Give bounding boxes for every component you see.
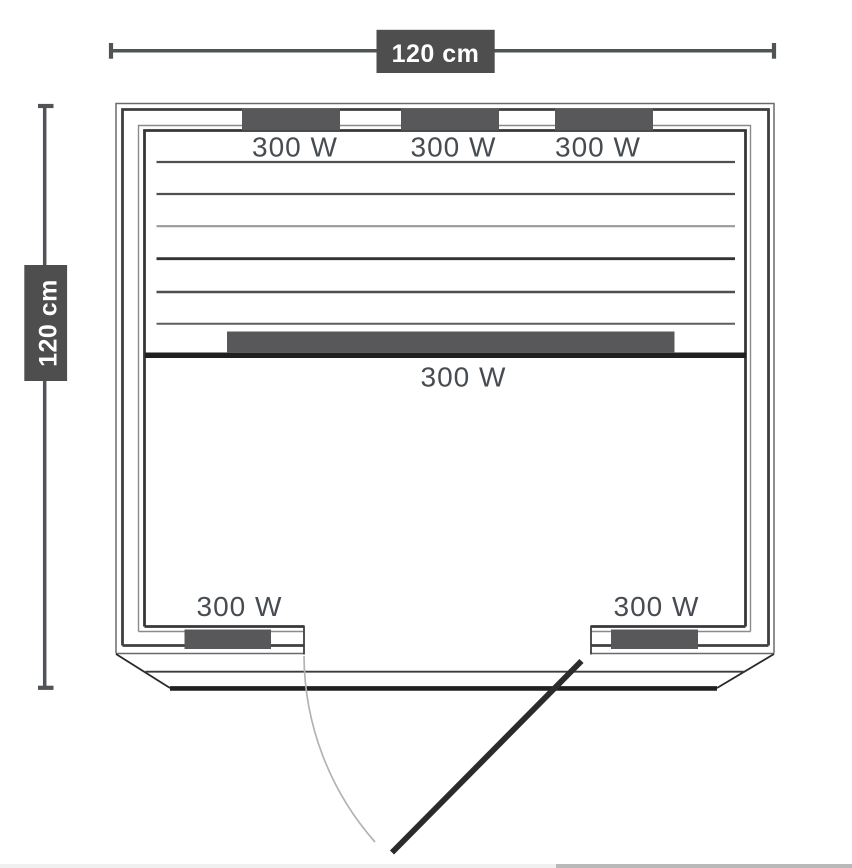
svg-text:300 W: 300 W <box>421 362 507 393</box>
svg-text:300 W: 300 W <box>252 132 338 163</box>
svg-text:120 cm: 120 cm <box>35 279 63 367</box>
svg-text:300 W: 300 W <box>197 591 283 622</box>
svg-text:300 W: 300 W <box>555 132 641 163</box>
svg-text:300 W: 300 W <box>411 132 497 163</box>
svg-text:120 cm: 120 cm <box>392 40 480 68</box>
svg-text:300 W: 300 W <box>614 591 700 622</box>
